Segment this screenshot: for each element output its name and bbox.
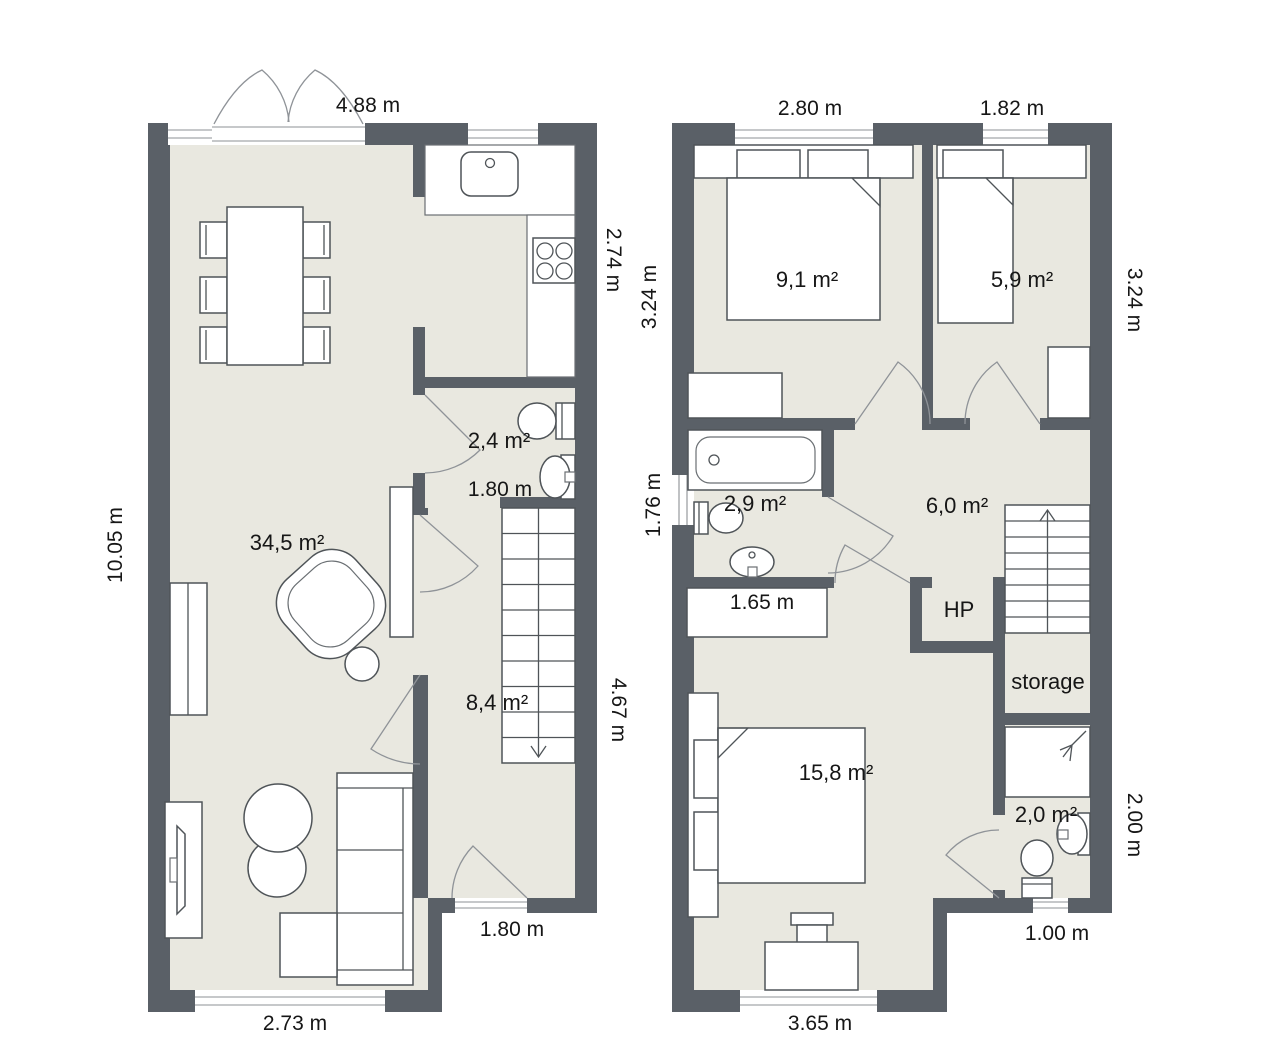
cabinet-icon [390,487,413,637]
double-bed-icon [718,728,865,883]
headboard-icon [694,145,913,178]
pillow-icon [694,740,721,798]
uf-dim-bottom: 3.65 m [788,1012,852,1035]
wardrobe-icon [1048,347,1090,418]
uf-area-bedroom2: 5,9 m² [991,267,1053,292]
upper-floor-plan: 2.80 m 1.82 m 3.24 m 3.24 m 1.76 m 2.00 … [638,97,1146,1035]
pillow-icon [808,150,868,178]
gf-dim-right-lower: 4.67 m [607,678,630,742]
dresser-icon [688,373,782,418]
uf-area-bedroom3: 15,8 m² [799,760,874,785]
gf-dim-entry: 1.80 m [480,918,544,941]
uf-dim-right-lower: 2.00 m [1123,793,1146,857]
floor-plan-page: 4.88 m 2.74 m 10.05 m 4.67 m 2.73 m 1.80… [0,0,1280,1060]
tv-bench-icon [165,802,202,938]
uf-dim-closet: 1.65 m [730,591,794,614]
sink-icon [540,455,575,499]
uf-dim-right-upper: 3.24 m [1123,268,1146,332]
uf-dim-top-left: 2.80 m [778,97,842,120]
desk-icon [765,942,858,990]
gf-staircase-icon [502,508,575,763]
ground-floor-plan: 4.88 m 2.74 m 10.05 m 4.67 m 2.73 m 1.80… [104,70,630,1035]
chair-icon [791,913,833,925]
stove-icon [533,238,575,283]
uf-area-bedroom1: 9,1 m² [776,267,838,292]
uf-area-bathroom: 2,9 m² [724,491,786,516]
uf-area-wc: 2,0 m² [1015,802,1077,827]
double-bed-icon [727,178,880,320]
pillow-icon [737,150,800,178]
gf-area-hall: 8,4 m² [466,690,528,715]
shower-icon [1005,727,1090,797]
uf-dim-bottom-right: 1.00 m [1025,922,1089,945]
uf-dim-top-right: 1.82 m [980,97,1044,120]
floor-plan-drawing: 4.88 m 2.74 m 10.05 m 4.67 m 2.73 m 1.80… [0,0,1280,1060]
pillow-icon [943,150,1003,178]
gf-area-living: 34,5 m² [250,530,325,555]
toilet-icon [1021,840,1053,898]
uf-staircase-icon [1005,505,1090,633]
gf-dim-top: 4.88 m [336,94,400,117]
gf-area-wc: 2,4 m² [468,428,530,453]
uf-dim-left-mid: 1.76 m [642,473,665,537]
headboard-icon [688,693,718,917]
sink-icon [730,547,774,577]
gf-dim-right-upper: 2.74 m [602,228,625,292]
side-table-icon [345,647,379,681]
gf-dim-left: 10.05 m [104,507,127,583]
single-bed-icon [938,178,1013,323]
dining-table-icon [227,207,303,365]
gf-dim-bottom: 2.73 m [263,1012,327,1035]
coffee-tables-icon [244,784,312,897]
bathtub-icon [688,430,822,490]
uf-area-hall: 6,0 m² [926,493,988,518]
uf-dim-left-upper: 3.24 m [638,265,661,329]
uf-label-storage: storage [1011,669,1084,694]
chair-icon [797,925,827,943]
gf-dining-set [200,207,330,365]
gf-dim-wc: 1.80 m [468,478,532,501]
pillow-icon [694,812,721,870]
uf-label-hp: HP [944,597,975,622]
